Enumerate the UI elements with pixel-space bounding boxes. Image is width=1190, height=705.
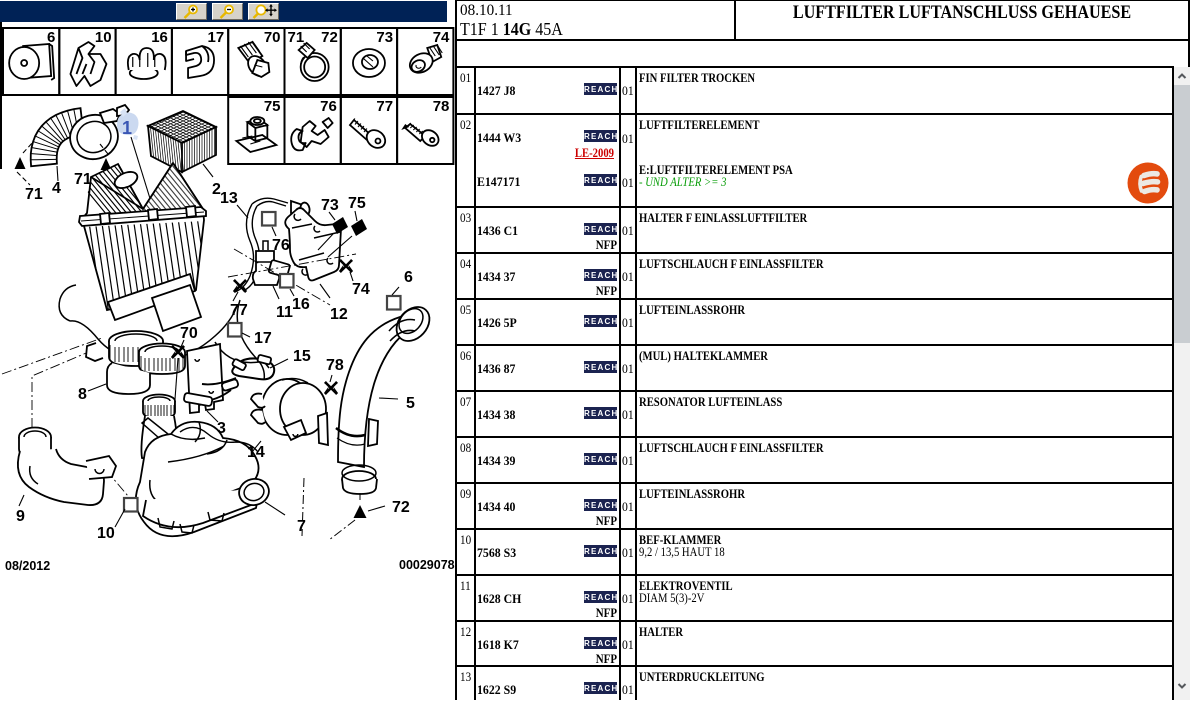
svg-text:76: 76 — [320, 98, 337, 115]
svg-text:70: 70 — [264, 29, 281, 46]
svg-text:14: 14 — [247, 444, 265, 461]
svg-text:72: 72 — [392, 499, 410, 516]
svg-text:71: 71 — [288, 29, 305, 46]
svg-text:9: 9 — [16, 508, 25, 525]
svg-text:10: 10 — [97, 525, 115, 542]
svg-text:8: 8 — [78, 386, 87, 403]
svg-text:13: 13 — [220, 190, 238, 207]
svg-text:76: 76 — [272, 237, 290, 254]
svg-text:08/2012: 08/2012 — [5, 559, 50, 573]
svg-text:71: 71 — [25, 186, 43, 203]
svg-text:72: 72 — [321, 29, 338, 46]
svg-text:17: 17 — [208, 29, 225, 46]
svg-text:4: 4 — [52, 180, 61, 197]
svg-text:5: 5 — [406, 395, 415, 412]
svg-text:17: 17 — [254, 330, 272, 347]
svg-text:78: 78 — [433, 98, 450, 115]
svg-text:12: 12 — [330, 306, 348, 323]
svg-text:70: 70 — [180, 325, 198, 342]
svg-text:73: 73 — [376, 29, 393, 46]
svg-text:7: 7 — [297, 518, 306, 535]
svg-text:73: 73 — [321, 197, 339, 214]
svg-text:78: 78 — [326, 357, 344, 374]
svg-text:15: 15 — [293, 348, 311, 365]
svg-text:00029078: 00029078 — [399, 558, 455, 572]
svg-text:16: 16 — [292, 296, 310, 313]
svg-text:11: 11 — [276, 304, 293, 321]
svg-text:77: 77 — [230, 302, 248, 319]
svg-text:75: 75 — [348, 195, 366, 212]
svg-text:16: 16 — [151, 29, 168, 46]
svg-text:10: 10 — [95, 29, 112, 46]
svg-text:74: 74 — [352, 281, 370, 298]
svg-text:75: 75 — [264, 98, 281, 115]
svg-text:77: 77 — [376, 98, 393, 115]
svg-text:6: 6 — [404, 269, 413, 286]
svg-text:3: 3 — [217, 420, 226, 437]
svg-text:74: 74 — [433, 29, 450, 46]
